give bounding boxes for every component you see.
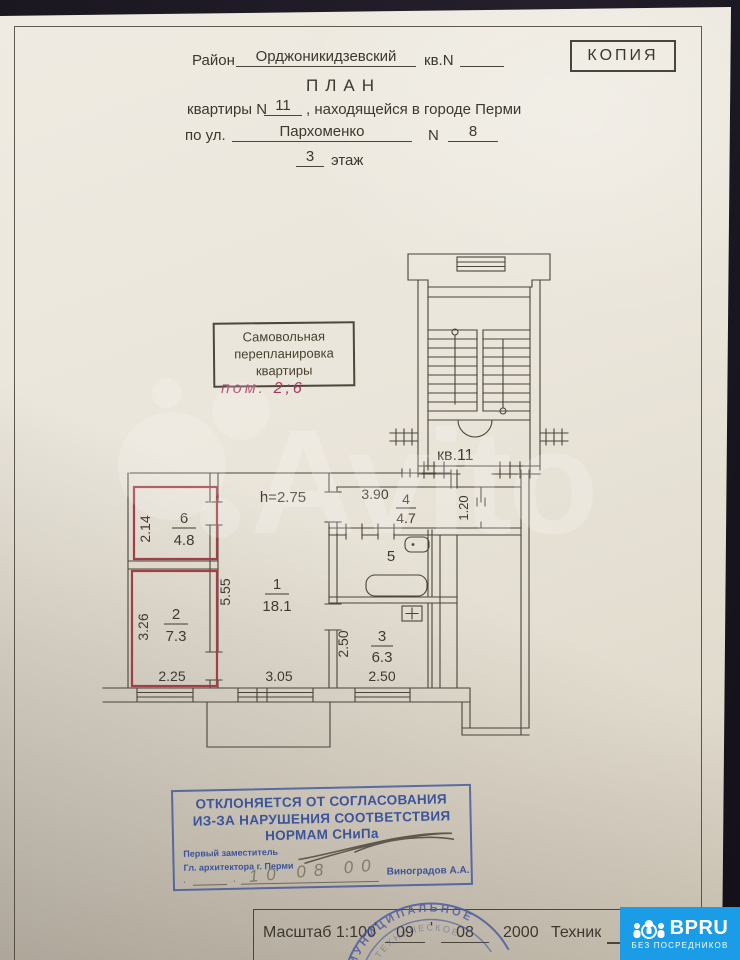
flat-number-label: кв.N: [424, 52, 454, 69]
stair-treads-left: [428, 330, 477, 411]
rejection-stamp: ОТКЛОНЯЕТСЯ ОТ СОГЛАСОВАНИЯ ИЗ-ЗА НАРУШЕ…: [171, 784, 473, 891]
district-label: Район: [192, 52, 235, 69]
plan-labels: кв.11 h=2.75 3.90 4 4.7 1.20 5 3 6.3 2.5…: [135, 447, 474, 684]
room-6-number: 6: [180, 510, 188, 527]
technician-label: Техник: [551, 924, 601, 942]
window-glazing-lines: [137, 693, 410, 698]
copy-stamp: КОПИЯ: [570, 40, 676, 72]
sink-fixture: [405, 537, 429, 552]
dim-room2-height: 3.26: [135, 613, 151, 640]
apartment-prefix: квартиры N: [187, 101, 267, 118]
room-3-number: 3: [378, 628, 386, 645]
date-dot: .: [183, 874, 186, 886]
apartment-number: 11: [264, 97, 302, 116]
bathtub-fixture: [366, 575, 427, 596]
room-1-number: 1: [273, 576, 281, 593]
street-field: Пархоменко: [232, 123, 412, 142]
room-1-area: 18.1: [262, 598, 291, 615]
apartment-label: кв.11: [437, 447, 474, 464]
date-underline-1: [193, 884, 227, 886]
room-2-number: 2: [172, 606, 180, 623]
street-label: по ул.: [185, 127, 226, 144]
ceiling-height-label: h=2.75: [260, 489, 306, 506]
district-field: Орджоникидзевский: [236, 48, 416, 67]
street-value: Пархоменко: [232, 123, 412, 142]
porch-window: [457, 257, 505, 271]
house-number-field: 8: [448, 123, 498, 142]
dim-hall-width: 3.90: [361, 486, 388, 502]
door-swing-arc: [458, 420, 492, 437]
room-5-number: 5: [387, 548, 395, 565]
date-dot2: .: [233, 873, 236, 885]
bpru-people-icon: [632, 918, 666, 940]
bpru-name: BPRU: [670, 917, 729, 940]
signer-name: Виноградов А.А.: [387, 865, 470, 878]
dim-room2-width: 2.25: [158, 668, 185, 684]
flat-number-blank: [460, 52, 504, 67]
room-2-area: 7.3: [166, 628, 187, 645]
floor-label: этаж: [331, 152, 363, 169]
dim-corridor-width: 1.20: [456, 495, 471, 520]
balcony-outline: [207, 702, 330, 747]
room-6-area: 4.8: [174, 532, 195, 549]
dim-room3-height: 2.50: [335, 630, 351, 657]
room-3-area: 6.3: [372, 649, 393, 666]
apartment-number-field: 11: [264, 97, 302, 116]
apartment-suffix: , находящейся в городе Перми: [306, 101, 521, 118]
paper-sheet: КОПИЯ Район Орджоникидзевский кв.N ПЛАН …: [0, 0, 740, 960]
floor-plan-drawing: кв.11 h=2.75 3.90 4 4.7 1.20 5 3 6.3 2.5…: [60, 240, 640, 790]
technician-underline: [607, 942, 621, 944]
bpru-tagline: БЕЗ ПОСРЕДНИКОВ: [632, 941, 729, 950]
photo-of-floor-plan-document: КОПИЯ Район Орджоникидзевский кв.N ПЛАН …: [0, 0, 740, 960]
floor-number: 3: [296, 148, 324, 167]
district-value: Орджоникидзевский: [236, 48, 416, 67]
dim-room3-width: 2.50: [368, 668, 395, 684]
room-4-number: 4: [402, 491, 410, 507]
bpru-badge: BPRU БЕЗ ПОСРЕДНИКОВ: [620, 907, 740, 960]
dim-room1-width: 3.05: [265, 668, 292, 684]
stair-treads-right: [483, 330, 530, 411]
dim-room1-height: 5.55: [217, 578, 233, 605]
house-number: 8: [448, 123, 498, 142]
house-number-label: N: [428, 127, 439, 144]
room-4-area: 4.7: [396, 510, 416, 526]
dim-room6-height: 2.14: [137, 515, 153, 542]
floor-field: 3: [296, 148, 324, 167]
page-title: ПЛАН: [306, 76, 381, 96]
